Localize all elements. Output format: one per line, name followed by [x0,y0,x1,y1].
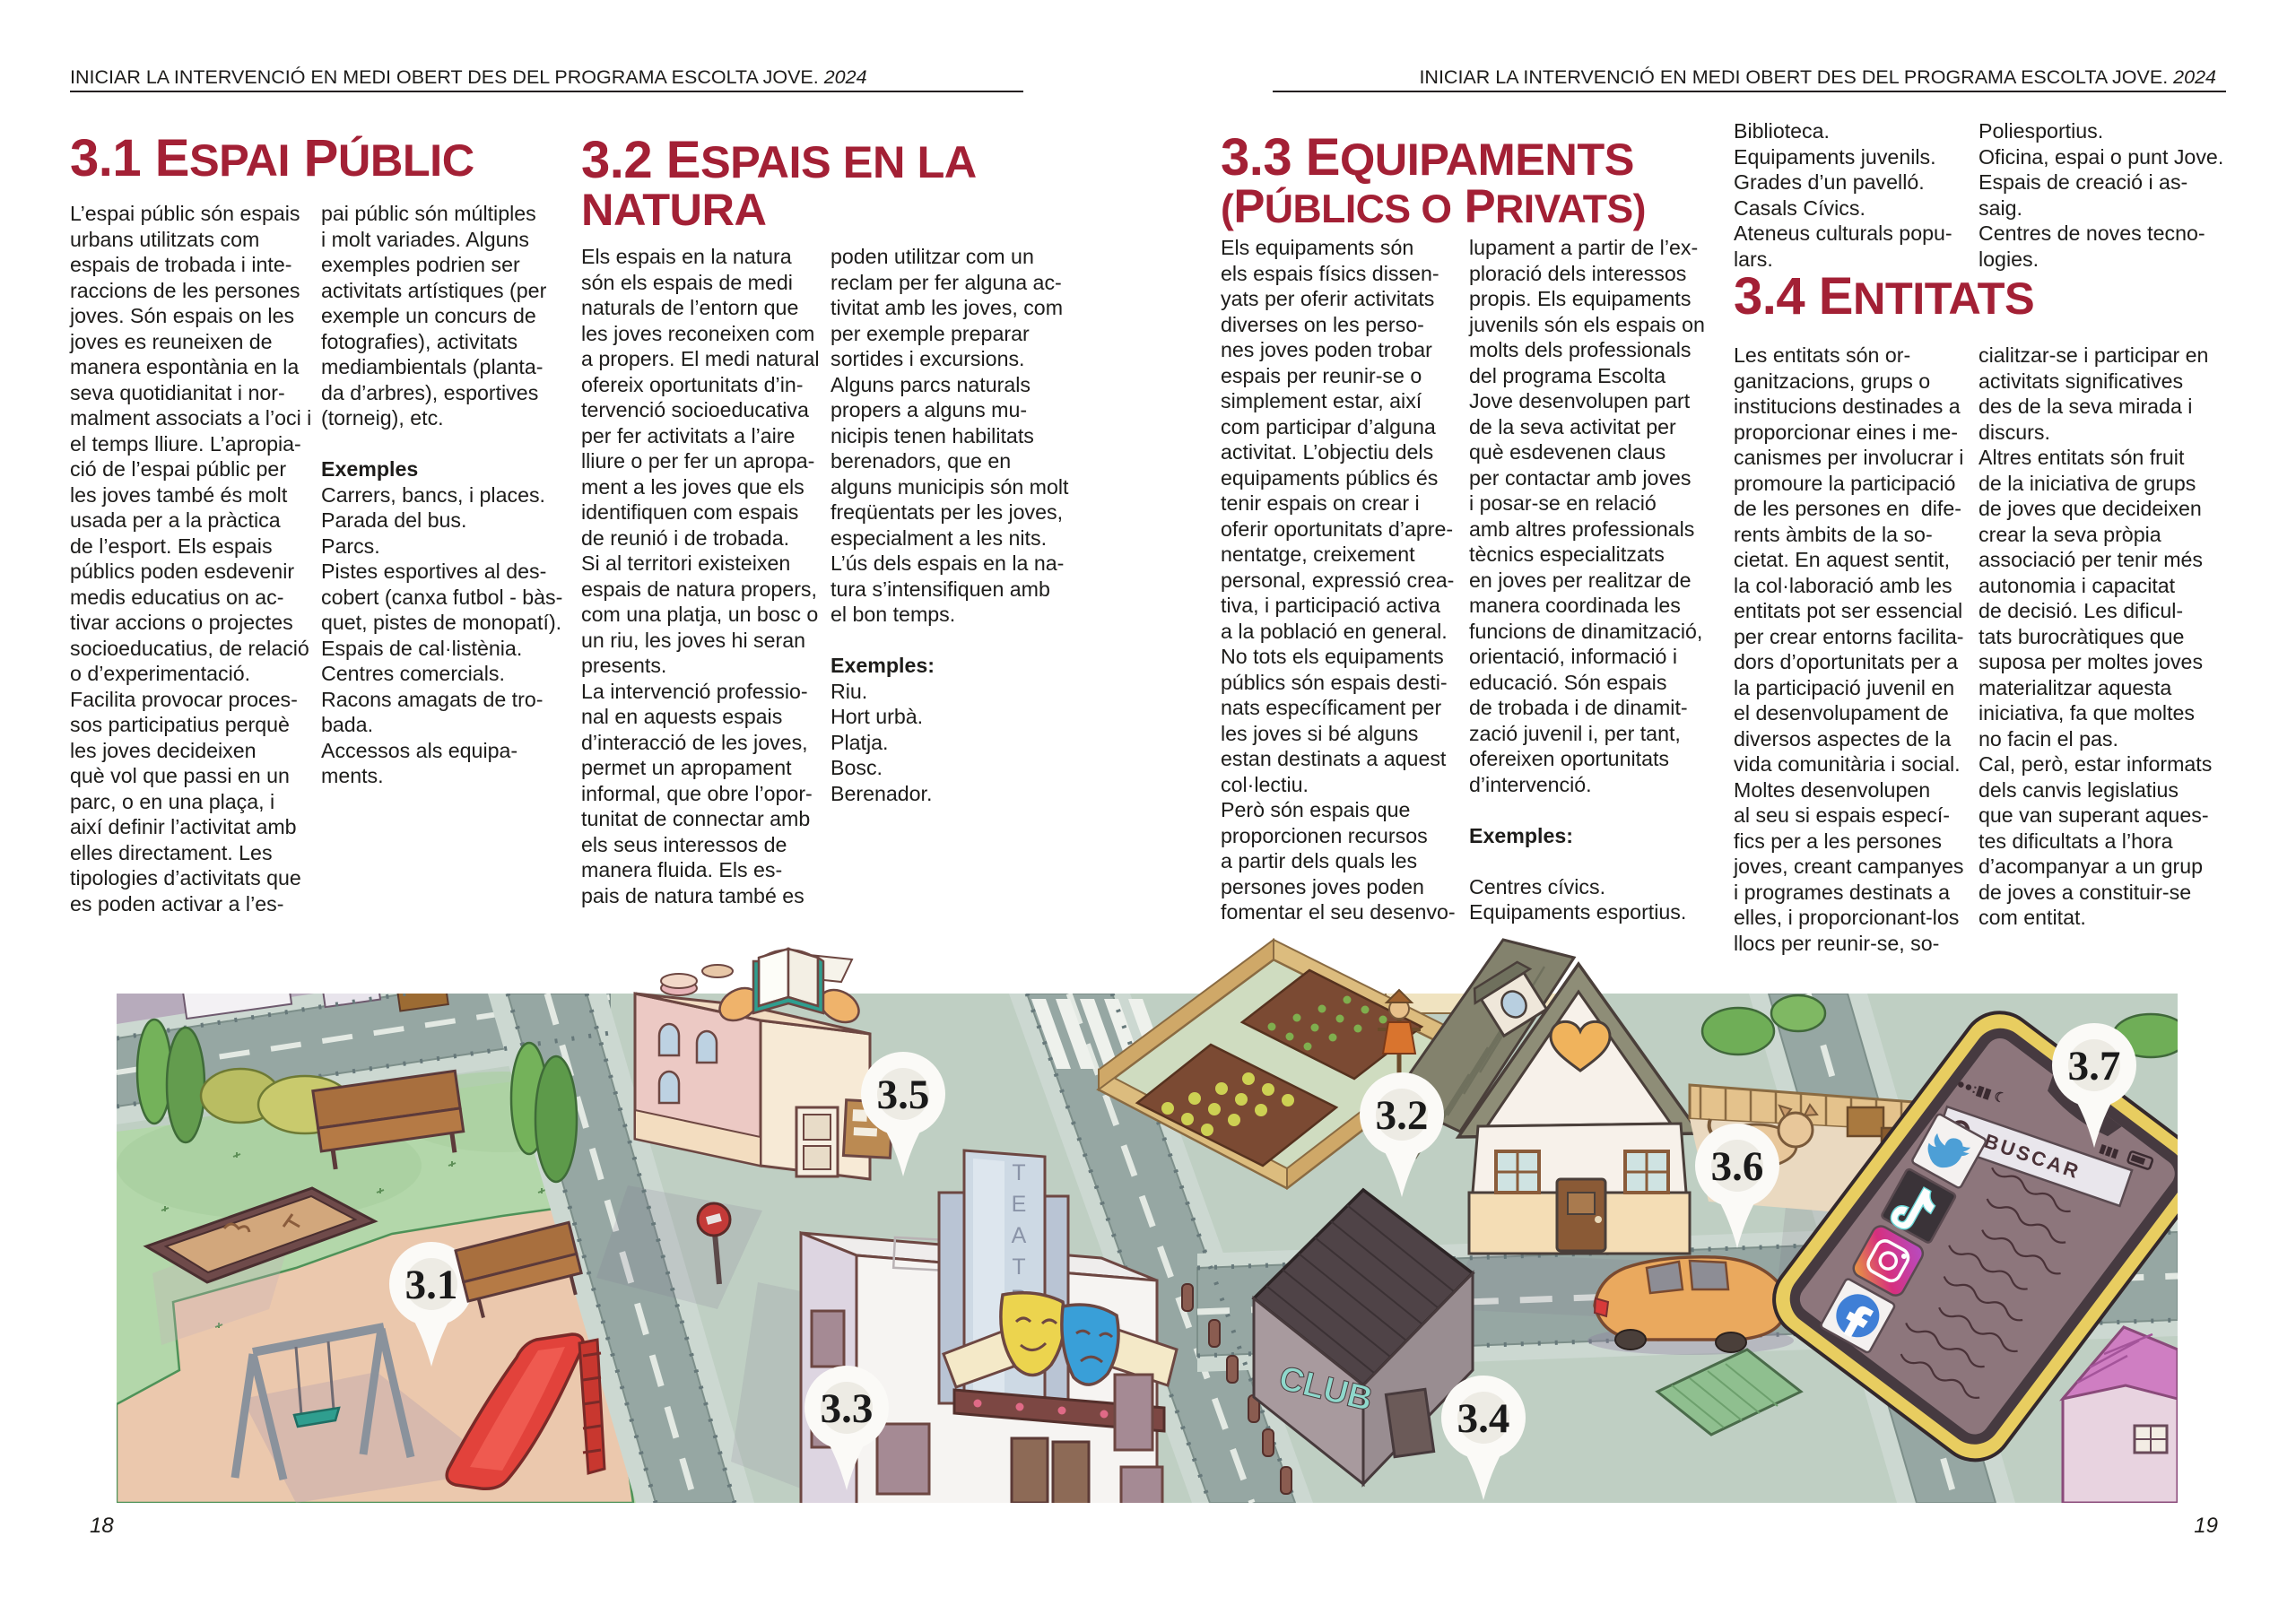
svg-text:T: T [1012,1254,1025,1280]
svg-text:3.4: 3.4 [1457,1395,1510,1442]
svg-text:3.6: 3.6 [1711,1143,1764,1190]
svg-text:3.2: 3.2 [1376,1092,1429,1139]
svg-text:3.5: 3.5 [877,1072,930,1118]
svg-text:3.7: 3.7 [2068,1043,2121,1089]
svg-text:A: A [1012,1223,1027,1248]
svg-text:3.3: 3.3 [821,1385,874,1432]
svg-text:3.1: 3.1 [405,1262,458,1308]
svg-text:T: T [1012,1160,1025,1185]
svg-text:E: E [1012,1192,1027,1217]
